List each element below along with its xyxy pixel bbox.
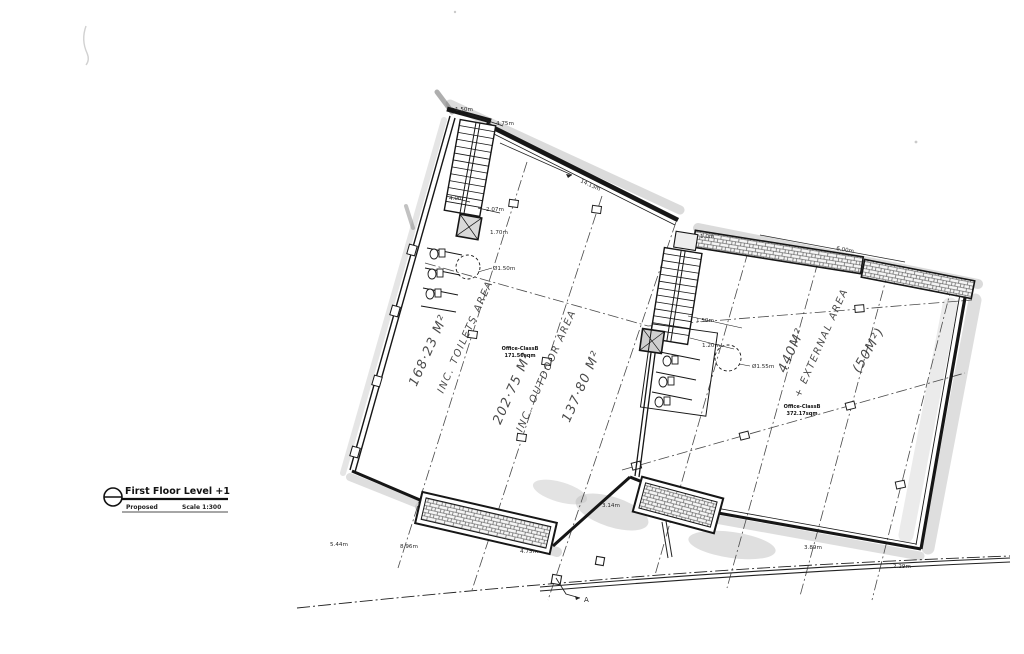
drawing-status: Proposed [126, 504, 158, 511]
dim-label-475a: 4.75m [496, 121, 514, 127]
office-label-right-line2: 372.17sqm [786, 411, 817, 417]
drawing-title: First Floor Level +1 [125, 486, 230, 497]
dim-label-150b: 1.50m [696, 318, 714, 324]
dim-label-10: 1.0m [700, 234, 714, 240]
dim-label-207: 2.07m [486, 207, 504, 213]
area-label-mid2: 137·80 M² [559, 348, 604, 424]
dim-label-896: 8.96m [400, 544, 418, 550]
title-block: First Floor Level +1 Proposed Scale 1:30… [104, 486, 230, 512]
dim-label-314: 3.14m [602, 503, 620, 509]
dim-label-170: 1.70m [490, 230, 508, 236]
lift-left [456, 214, 481, 239]
section-marker-label: A [584, 596, 589, 604]
dim-label-circle155: Ø1.55m [752, 363, 774, 370]
drawing-scale: Scale 1:300 [182, 504, 221, 511]
dim-label-475b: 4.75m [520, 549, 538, 555]
toilet-block-middle [640, 316, 750, 416]
datum-circle-icon [104, 488, 122, 506]
scanned-floor-plan-page: A [0, 0, 1024, 654]
area-paren-right: (50M²) [850, 325, 888, 376]
dim-label-544: 5.44m [330, 542, 348, 548]
top-right-wall-strip-2 [861, 259, 974, 298]
floor-plan-canvas: A [0, 0, 1024, 654]
lift-middle [640, 329, 665, 354]
dim-label-40: 4.0m [449, 196, 463, 202]
office-label-left-line2: 171.50sqm [504, 353, 535, 359]
dim-label-389: 3.89m [804, 545, 822, 551]
office-label-left-line1: Office-ClassB [502, 346, 539, 352]
dim-label-150a: 1.50m [455, 107, 473, 113]
dim-label-120: 1.20m [702, 343, 720, 349]
dim-label-229: 2.29m [893, 564, 911, 570]
office-label-right-line1: Office-ClassB [784, 404, 821, 410]
dim-label-circle150: Ø1.50m [493, 265, 515, 272]
area-note-left: INC. TOILETS AREA [436, 279, 496, 395]
terrace-bottom-left [415, 492, 557, 554]
area-label-right: 440M² [775, 326, 808, 375]
